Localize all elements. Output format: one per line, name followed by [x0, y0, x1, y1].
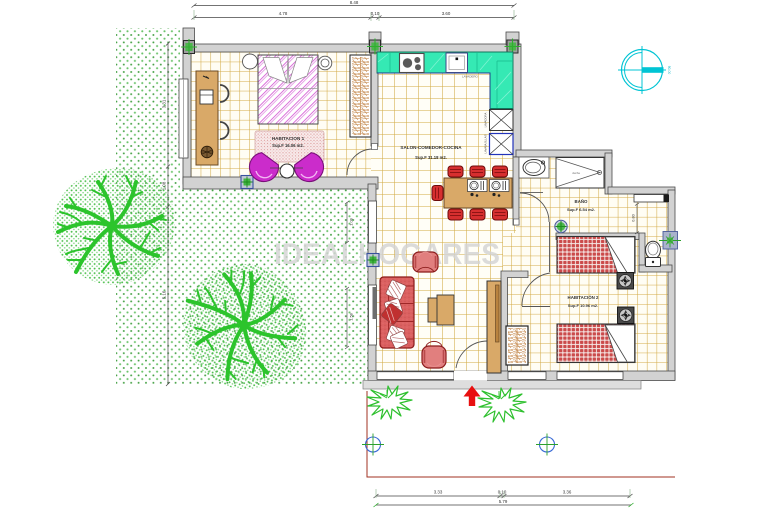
svg-text:0.10: 0.10: [371, 11, 380, 16]
svg-text:1.08: 1.08: [162, 181, 167, 190]
svg-text:1.08: 1.08: [349, 218, 354, 226]
svg-text:0.10: 0.10: [498, 490, 507, 495]
svg-text:8.48: 8.48: [350, 0, 359, 5]
svg-text:LAVADORA: LAVADORA: [484, 112, 488, 127]
svg-text:0.80: 0.80: [632, 214, 636, 221]
svg-text:1.58: 1.58: [349, 313, 354, 321]
svg-text:LAVAVAJILLAS: LAVAVAJILLAS: [484, 134, 488, 153]
svg-text:5.16: 5.16: [162, 290, 167, 299]
svg-text:IDEALHOGARES: IDEALHOGARES: [274, 238, 500, 271]
svg-text:Sup.F 6.54 m2.: Sup.F 6.54 m2.: [567, 207, 595, 212]
svg-text:SALON-COMEDOR-COCINA: SALON-COMEDOR-COCINA: [400, 145, 462, 150]
svg-text:3.36: 3.36: [563, 490, 572, 495]
svg-text:3.33: 3.33: [434, 490, 443, 495]
svg-text:ducha: ducha: [572, 171, 580, 175]
svg-text:4.78: 4.78: [279, 11, 288, 16]
svg-text:HABITACION 1: HABITACION 1: [272, 136, 305, 141]
svg-text:Sup.F 16.06 m2.: Sup.F 16.06 m2.: [272, 143, 304, 148]
svg-text:LAVADERO: LAVADERO: [462, 75, 479, 79]
svg-text:3.60: 3.60: [442, 11, 451, 16]
svg-text:90.00: 90.00: [667, 66, 671, 75]
svg-text:BAÑO: BAÑO: [575, 199, 589, 204]
svg-text:5.79: 5.79: [499, 499, 508, 504]
svg-text:3.31: 3.31: [162, 99, 167, 108]
svg-text:Sup.F 10.96 m2.: Sup.F 10.96 m2.: [568, 303, 598, 308]
svg-text:HABITACIÓN 2: HABITACIÓN 2: [568, 295, 599, 300]
svg-text:Sup.F 31.18 m2.: Sup.F 31.18 m2.: [415, 155, 447, 160]
